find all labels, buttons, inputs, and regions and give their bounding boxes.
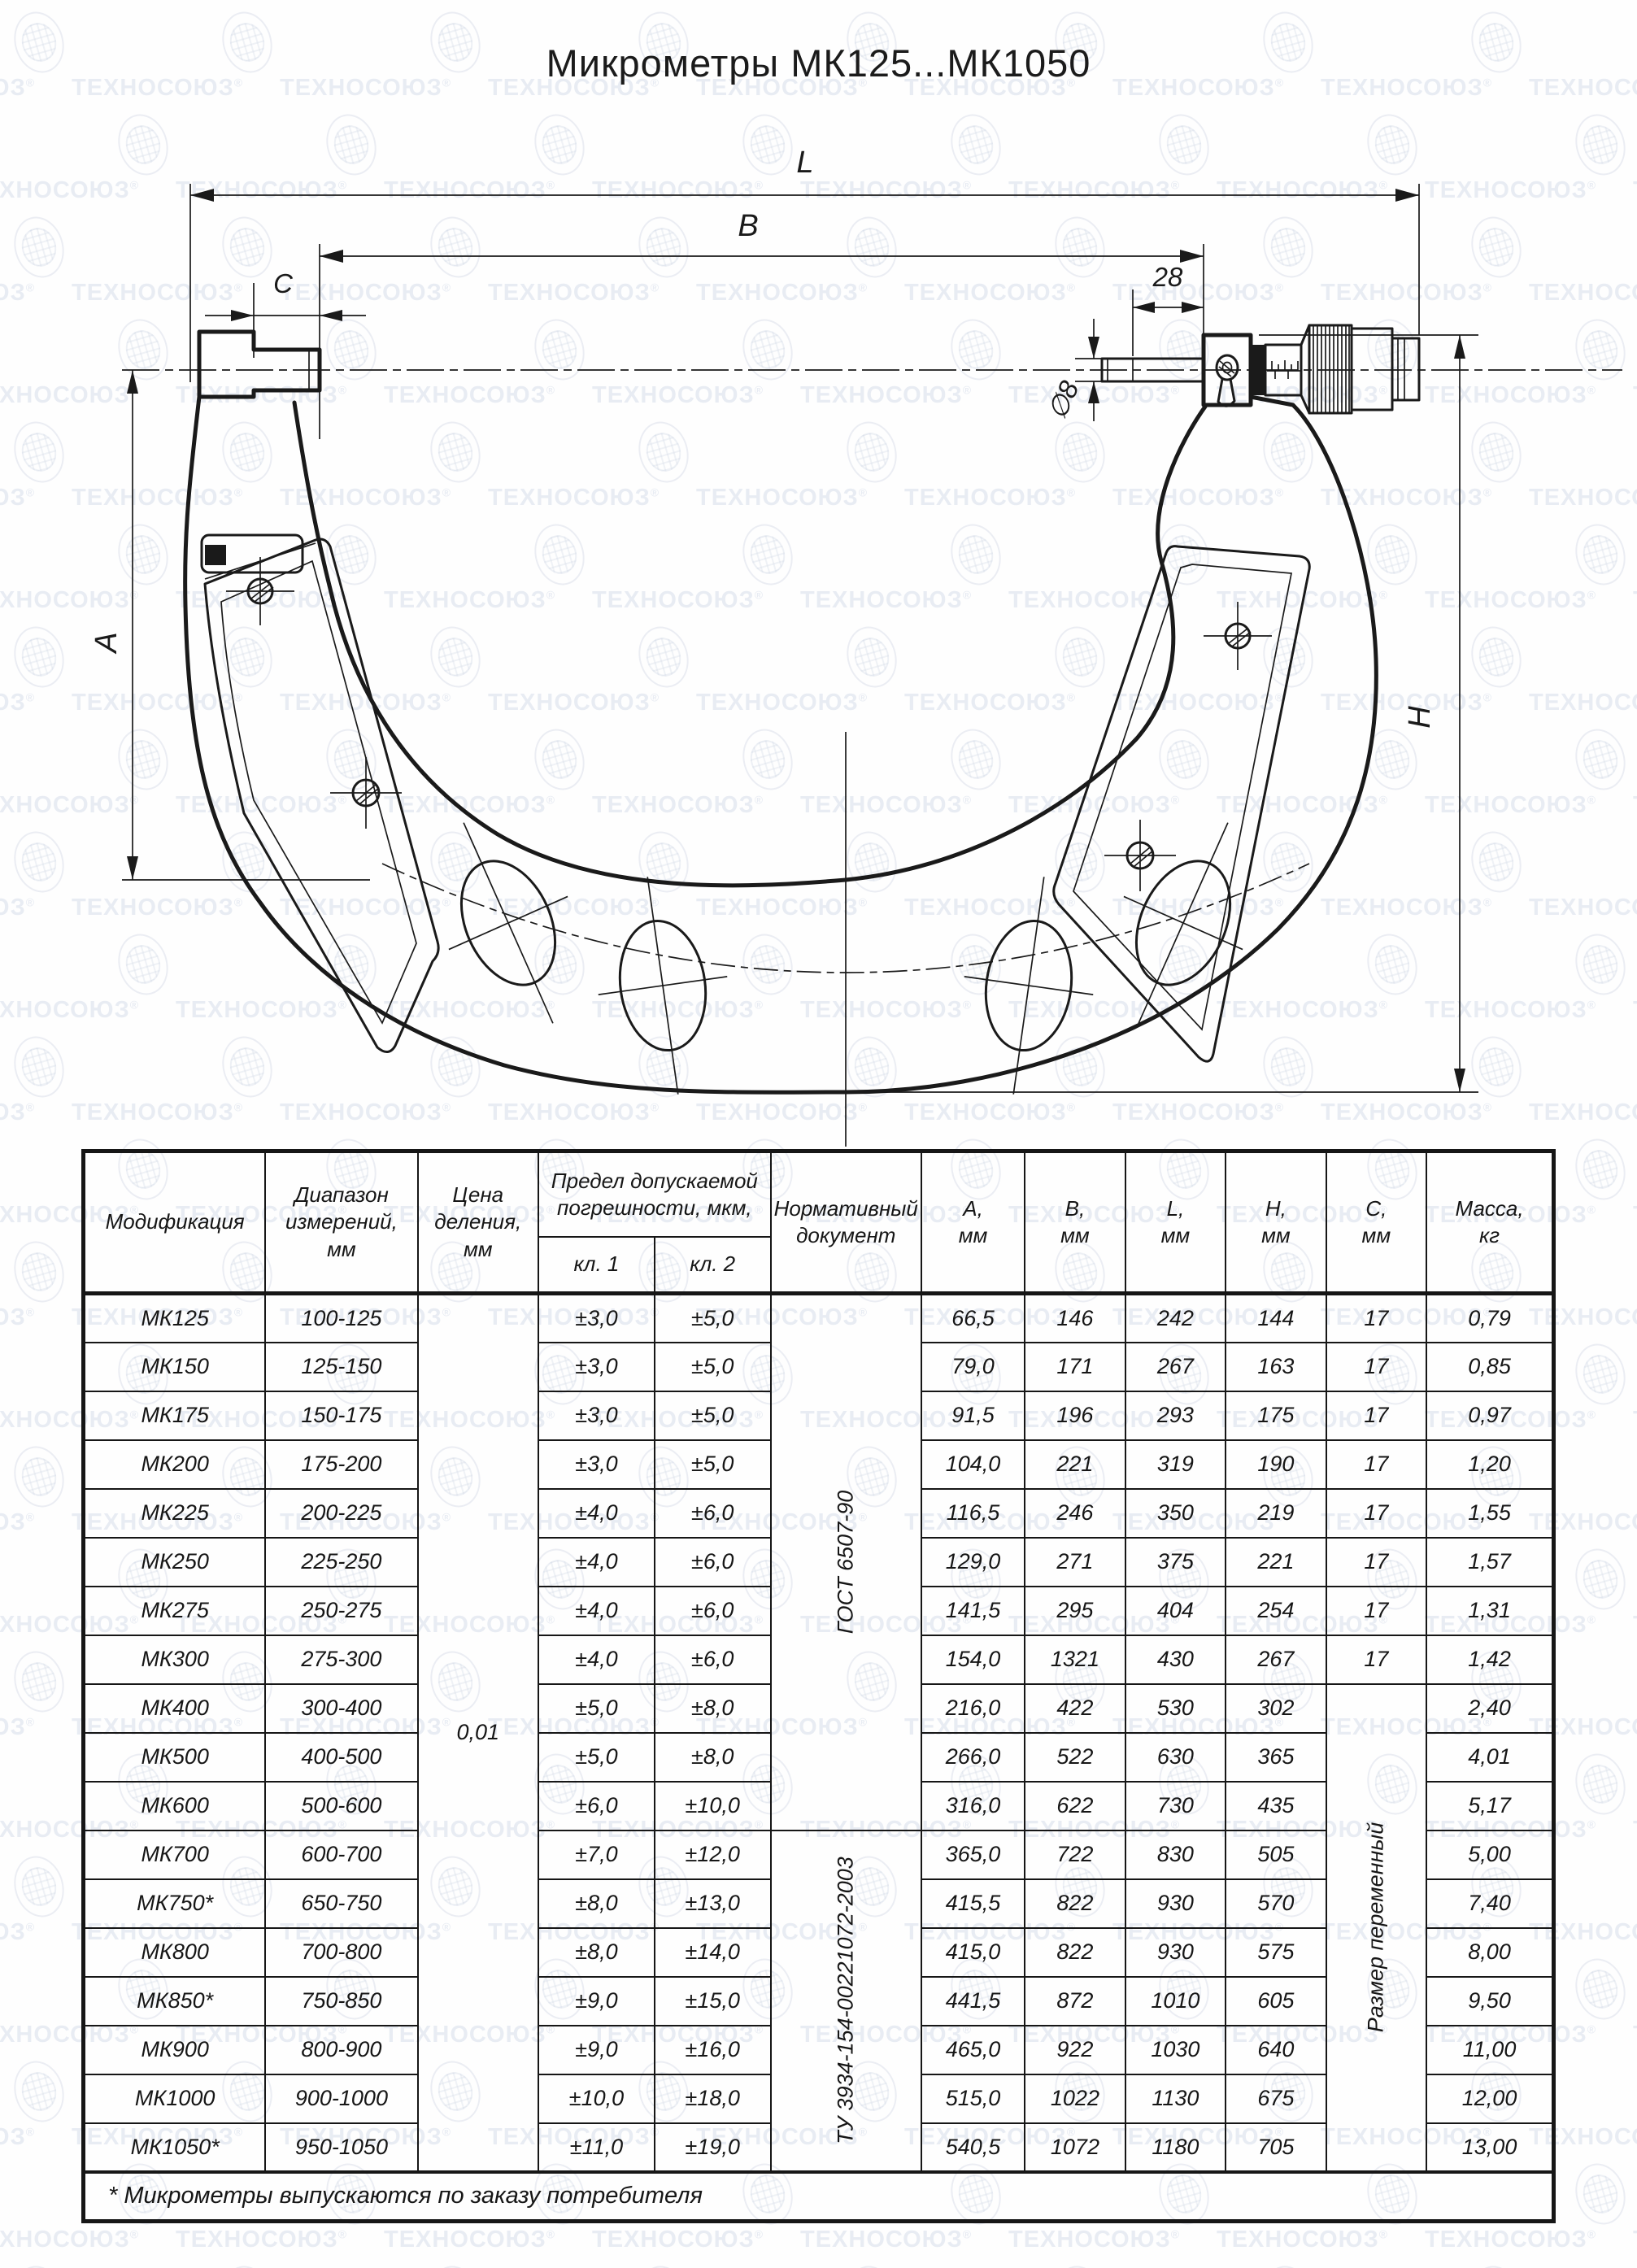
- cell-range: 600-700: [265, 1831, 417, 1879]
- cell-kl2: ±5,0: [655, 1343, 771, 1391]
- cell-h: 505: [1226, 1831, 1326, 1879]
- cell-range: 250-275: [265, 1587, 417, 1635]
- cell-kl2: ±5,0: [655, 1440, 771, 1489]
- cell-c: 17: [1326, 1391, 1426, 1440]
- cell-h: 365: [1226, 1733, 1326, 1782]
- cell-mod: МК750*: [84, 1879, 266, 1928]
- watermark-text: ТЕХНОСОЮЗ®: [0, 1714, 35, 1741]
- table-header: МодификацияДиапазонизмерений,ммЦенаделен…: [84, 1151, 1554, 1294]
- cell-kl2: ±14,0: [655, 1928, 771, 1977]
- cell-a: 104,0: [921, 1440, 1025, 1489]
- cell-range: 900-1000: [265, 2074, 417, 2123]
- cell-kl2: ±8,0: [655, 1733, 771, 1782]
- cell-b: 622: [1025, 1782, 1125, 1831]
- watermark-text: ТЕХНОСОЮЗ®: [1633, 1202, 1637, 1229]
- cell-mass: 13,00: [1426, 2123, 1553, 2172]
- cell-h: 302: [1226, 1684, 1326, 1733]
- cell-a: 66,5: [921, 1294, 1025, 1343]
- cell-l: 730: [1125, 1782, 1226, 1831]
- header-cell-kl1: кл. 1: [538, 1237, 655, 1294]
- spec-table: МодификацияДиапазонизмерений,ммЦенаделен…: [81, 1149, 1556, 2223]
- cell-mod: МК800: [84, 1928, 266, 1977]
- watermark-text: ТЕХНОСОЮЗ®: [0, 2227, 139, 2253]
- cell-b: 1072: [1025, 2123, 1125, 2172]
- cell-l: 404: [1125, 1587, 1226, 1635]
- cell-mass: 9,50: [1426, 1977, 1553, 2026]
- cell-c: 17: [1326, 1587, 1426, 1635]
- cell-range: 175-200: [265, 1440, 417, 1489]
- cell-l: 350: [1125, 1489, 1226, 1538]
- cell-mass: 1,42: [1426, 1635, 1553, 1684]
- cell-b: 221: [1025, 1440, 1125, 1489]
- cell-kl2: ±16,0: [655, 2026, 771, 2074]
- cell-kl2: ±8,0: [655, 1684, 771, 1733]
- cell-b: 822: [1025, 1879, 1125, 1928]
- watermark-text: ТЕХНОСОЮЗ®: [592, 2227, 764, 2253]
- cell-kl2: ±15,0: [655, 1977, 771, 2026]
- cell-kl1: ±9,0: [538, 1977, 655, 2026]
- cell-mod: МК125: [84, 1294, 266, 1343]
- watermark-globe-icon: [7, 1235, 72, 1308]
- watermark-text: ТЕХНОСОЮЗ®: [0, 1509, 35, 1536]
- cell-a: 141,5: [921, 1587, 1025, 1635]
- cell-mod: МК1000: [84, 2074, 266, 2123]
- cell-h: 705: [1226, 2123, 1326, 2172]
- watermark-globe-icon: [1569, 1748, 1633, 1821]
- cell-kl1: ±11,0: [538, 2123, 655, 2172]
- frame-outer-contour: [185, 397, 1377, 1092]
- anvil-block: [199, 332, 320, 397]
- header-cell-price: Ценаделения,мм: [418, 1151, 539, 1294]
- header-cell-doc: Нормативныйдокумент: [771, 1151, 921, 1294]
- cell-l: 1010: [1125, 1977, 1226, 2026]
- cell-mass: 8,00: [1426, 1928, 1553, 1977]
- cell-h: 640: [1226, 2026, 1326, 2074]
- right-plate-outer: [1054, 546, 1310, 1061]
- cell-a: 91,5: [921, 1391, 1025, 1440]
- table-row: МК125100-1250,01±3,0±5,0ГОСТ 6507-9066,5…: [84, 1294, 1554, 1343]
- cell-mod: МК600: [84, 1782, 266, 1831]
- cell-kl2: ±12,0: [655, 1831, 771, 1879]
- cell-doc-gost: ГОСТ 6507-90: [771, 1294, 921, 1831]
- cell-l: 267: [1125, 1343, 1226, 1391]
- cell-a: 129,0: [921, 1538, 1025, 1587]
- cell-kl1: ±7,0: [538, 1831, 655, 1879]
- cell-range: 125-150: [265, 1343, 417, 1391]
- cell-h: 575: [1226, 1928, 1326, 1977]
- cell-mod: МК225: [84, 1489, 266, 1538]
- cell-h: 570: [1226, 1879, 1326, 1928]
- screw: [226, 557, 294, 625]
- screw: [1204, 602, 1272, 670]
- cell-b: 822: [1025, 1928, 1125, 1977]
- cell-c: 17: [1326, 1489, 1426, 1538]
- watermark-text: ТЕХНОСОЮЗ®: [800, 2227, 972, 2253]
- cell-a: 216,0: [921, 1684, 1025, 1733]
- cell-mod: МК150: [84, 1343, 266, 1391]
- cell-range: 650-750: [265, 1879, 417, 1928]
- right-plate-inner: [1073, 564, 1291, 1030]
- cell-a: 465,0: [921, 2026, 1025, 2074]
- watermark-text: ТЕХНОСОЮЗ®: [1425, 2227, 1596, 2253]
- cell-mass: 5,00: [1426, 1831, 1553, 1879]
- cell-mass: 0,97: [1426, 1391, 1553, 1440]
- cell-l: 430: [1125, 1635, 1226, 1684]
- cell-kl1: ±8,0: [538, 1928, 655, 1977]
- table-footer: * Микрометры выпускаются по заказу потре…: [84, 2172, 1554, 2222]
- cell-kl2: ±18,0: [655, 2074, 771, 2123]
- cell-b: 295: [1025, 1587, 1125, 1635]
- cell-kl2: ±5,0: [655, 1391, 771, 1440]
- screw: [1104, 820, 1176, 891]
- cell-c-variable: Размер переменный: [1326, 1684, 1426, 2172]
- watermark-text: ТЕХНОСОЮЗ®: [0, 1919, 35, 1946]
- cell-a: 79,0: [921, 1343, 1025, 1391]
- cell-l: 1180: [1125, 2123, 1226, 2172]
- cell-a: 415,0: [921, 1928, 1025, 1977]
- micrometer-drawing: L B C 28 ∅8 A: [0, 0, 1637, 1147]
- cell-kl1: ±6,0: [538, 1782, 655, 1831]
- cell-kl1: ±4,0: [538, 1538, 655, 1587]
- cell-kl1: ±4,0: [538, 1489, 655, 1538]
- watermark-globe-icon: [840, 2260, 904, 2268]
- cell-mod: МК900: [84, 2026, 266, 2074]
- cell-mass: 2,40: [1426, 1684, 1553, 1733]
- watermark-globe-icon: [7, 1645, 72, 1718]
- cell-b: 522: [1025, 1733, 1125, 1782]
- dim-label-H: H: [1403, 706, 1437, 729]
- left-plate-inner: [221, 561, 416, 1023]
- cell-range: 275-300: [265, 1635, 417, 1684]
- cell-mod: МК300: [84, 1635, 266, 1684]
- cell-mass: 1,31: [1426, 1587, 1553, 1635]
- cell-b: 422: [1025, 1684, 1125, 1733]
- cell-a: 365,0: [921, 1831, 1025, 1879]
- cell-b: 1321: [1025, 1635, 1125, 1684]
- cell-mod: МК175: [84, 1391, 266, 1440]
- cell-mod: МК700: [84, 1831, 266, 1879]
- cell-a: 515,0: [921, 2074, 1025, 2123]
- cell-kl1: ±5,0: [538, 1733, 655, 1782]
- cell-mod: МК850*: [84, 1977, 266, 2026]
- cell-range: 150-175: [265, 1391, 417, 1440]
- watermark-text: ТЕХНОСОЮЗ®: [1633, 1817, 1637, 1844]
- cell-doc-tu: ТУ 3934-154-00221072-2003: [771, 1831, 921, 2172]
- cell-h: 163: [1226, 1343, 1326, 1391]
- frame-inner-contour: [294, 403, 1205, 886]
- table-body: МК125100-1250,01±3,0±5,0ГОСТ 6507-9066,5…: [84, 1294, 1554, 2172]
- cell-kl2: ±13,0: [655, 1879, 771, 1928]
- watermark-globe-icon: [1569, 1338, 1633, 1411]
- cell-mod: МК400: [84, 1684, 266, 1733]
- cell-h: 144: [1226, 1294, 1326, 1343]
- cell-mass: 5,17: [1426, 1782, 1553, 1831]
- footnote-row: * Микрометры выпускаются по заказу потре…: [84, 2172, 1554, 2222]
- datasheet-page: ТЕХНОСОЮЗ®ТЕХНОСОЮЗ®ТЕХНОСОЮЗ®ТЕХНОСОЮЗ®…: [0, 0, 1637, 2268]
- cell-h: 675: [1226, 2074, 1326, 2123]
- header-cell-l: L,мм: [1125, 1151, 1226, 1294]
- watermark-globe-icon: [7, 2260, 72, 2268]
- cell-l: 830: [1125, 1831, 1226, 1879]
- cell-range: 800-900: [265, 2026, 417, 2074]
- watermark-globe-icon: [632, 2260, 696, 2268]
- cell-b: 872: [1025, 1977, 1125, 2026]
- footnote-text: * Микрометры выпускаются по заказу потре…: [84, 2172, 1554, 2222]
- cell-b: 246: [1025, 1489, 1125, 1538]
- watermark-globe-icon: [1465, 2260, 1529, 2268]
- cell-kl1: ±3,0: [538, 1391, 655, 1440]
- frame-hole: [583, 868, 742, 1104]
- cell-range: 300-400: [265, 1684, 417, 1733]
- cell-range: 750-850: [265, 1977, 417, 2026]
- cell-b: 146: [1025, 1294, 1125, 1343]
- dim-label-C: C: [273, 268, 294, 298]
- watermark-text: ТЕХНОСОЮЗ®: [176, 2227, 347, 2253]
- cell-a: 441,5: [921, 1977, 1025, 2026]
- watermark-text: ТЕХНОСОЮЗ®: [0, 1304, 35, 1331]
- cell-l: 630: [1125, 1733, 1226, 1782]
- cell-l: 375: [1125, 1538, 1226, 1587]
- cell-l: 1030: [1125, 2026, 1226, 2074]
- header-cell-a: А,мм: [921, 1151, 1025, 1294]
- cell-a: 116,5: [921, 1489, 1025, 1538]
- cell-h: 267: [1226, 1635, 1326, 1684]
- page-title: Микрометры МК125...МК1050: [0, 41, 1637, 85]
- cell-h: 254: [1226, 1587, 1326, 1635]
- cell-kl2: ±10,0: [655, 1782, 771, 1831]
- dim-label-L: L: [796, 146, 813, 180]
- cell-kl2: ±6,0: [655, 1587, 771, 1635]
- dim-label-A: A: [89, 632, 124, 654]
- cell-mass: 12,00: [1426, 2074, 1553, 2123]
- cell-price-merged: 0,01: [418, 1294, 539, 2172]
- cell-a: 266,0: [921, 1733, 1025, 1782]
- cell-mod: МК200: [84, 1440, 266, 1489]
- cell-b: 271: [1025, 1538, 1125, 1587]
- header-cell-limit: Предел допускаемойпогрешности, мкм,: [538, 1151, 771, 1238]
- cell-l: 530: [1125, 1684, 1226, 1733]
- watermark-globe-icon: [424, 2260, 488, 2268]
- cell-kl2: ±6,0: [655, 1635, 771, 1684]
- watermark-text: ТЕХНОСОЮЗ®: [1008, 2227, 1180, 2253]
- cell-h: 605: [1226, 1977, 1326, 2026]
- dim-label-B: B: [738, 209, 758, 243]
- cell-kl1: ±8,0: [538, 1879, 655, 1928]
- watermark-globe-icon: [1569, 1952, 1633, 2026]
- cell-h: 221: [1226, 1538, 1326, 1587]
- dim-label-dia8: ∅8: [1042, 376, 1085, 424]
- cell-kl1: ±5,0: [538, 1684, 655, 1733]
- cell-range: 500-600: [265, 1782, 417, 1831]
- header-cell-b: В,мм: [1025, 1151, 1125, 1294]
- cell-kl1: ±10,0: [538, 2074, 655, 2123]
- watermark-text: ТЕХНОСОЮЗ®: [1217, 2227, 1388, 2253]
- watermark-globe-icon: [1569, 1543, 1633, 1616]
- cell-kl2: ±5,0: [655, 1294, 771, 1343]
- watermark-globe-icon: [216, 2260, 280, 2268]
- cell-mass: 1,20: [1426, 1440, 1553, 1489]
- ratchet-stop: [1392, 338, 1419, 400]
- cell-h: 175: [1226, 1391, 1326, 1440]
- cell-kl1: ±9,0: [538, 2026, 655, 2074]
- dim-label-28: 28: [1152, 262, 1183, 292]
- cell-l: 930: [1125, 1928, 1226, 1977]
- header-cell-mod: Модификация: [84, 1151, 266, 1294]
- cell-a: 415,5: [921, 1879, 1025, 1928]
- cell-kl1: ±3,0: [538, 1343, 655, 1391]
- watermark-text: ТЕХНОСОЮЗ®: [0, 2124, 35, 2151]
- watermark-globe-icon: [7, 2055, 72, 2128]
- header-cell-mass: Масса,кг: [1426, 1151, 1553, 1294]
- cell-b: 171: [1025, 1343, 1125, 1391]
- cell-mod: МК1050*: [84, 2123, 266, 2172]
- cell-b: 196: [1025, 1391, 1125, 1440]
- header-cell-range: Диапазонизмерений,мм: [265, 1151, 417, 1294]
- lock-lever: [1217, 355, 1238, 406]
- watermark-text: ТЕХНОСОЮЗ®: [384, 2227, 555, 2253]
- cell-mass: 7,40: [1426, 1879, 1553, 1928]
- cell-mod: МК250: [84, 1538, 266, 1587]
- cell-c: 17: [1326, 1343, 1426, 1391]
- cell-c: 17: [1326, 1440, 1426, 1489]
- cell-c: 17: [1326, 1635, 1426, 1684]
- cell-range: 950-1050: [265, 2123, 417, 2172]
- header-cell-kl2: кл. 2: [655, 1237, 771, 1294]
- watermark-globe-icon: [1048, 2260, 1112, 2268]
- cell-kl1: ±4,0: [538, 1635, 655, 1684]
- watermark-text: ТЕХНОСОЮЗ®: [1633, 1407, 1637, 1434]
- header-row: МодификацияДиапазонизмерений,ммЦенаделен…: [84, 1151, 1554, 1238]
- cell-mass: 11,00: [1426, 2026, 1553, 2074]
- cell-h: 190: [1226, 1440, 1326, 1489]
- cell-range: 400-500: [265, 1733, 417, 1782]
- cell-c: 17: [1326, 1294, 1426, 1343]
- header-cell-h: Н,мм: [1226, 1151, 1326, 1294]
- cell-a: 154,0: [921, 1635, 1025, 1684]
- cell-kl2: ±19,0: [655, 2123, 771, 2172]
- cell-mass: 1,55: [1426, 1489, 1553, 1538]
- cell-a: 316,0: [921, 1782, 1025, 1831]
- cell-kl2: ±6,0: [655, 1489, 771, 1538]
- cell-range: 100-125: [265, 1294, 417, 1343]
- cell-range: 200-225: [265, 1489, 417, 1538]
- watermark-text: ТЕХНОСОЮЗ®: [1633, 1612, 1637, 1639]
- cell-range: 225-250: [265, 1538, 417, 1587]
- cell-c: 17: [1326, 1538, 1426, 1587]
- watermark-text: ТЕХНОСОЮЗ®: [1633, 2022, 1637, 2048]
- watermark-text: ТЕХНОСОЮЗ®: [1633, 2227, 1637, 2253]
- cell-l: 319: [1125, 1440, 1226, 1489]
- cell-kl1: ±3,0: [538, 1440, 655, 1489]
- cell-h: 219: [1226, 1489, 1326, 1538]
- cell-l: 930: [1125, 1879, 1226, 1928]
- frame-hole: [404, 796, 612, 1050]
- cell-b: 922: [1025, 2026, 1125, 2074]
- cell-kl1: ±3,0: [538, 1294, 655, 1343]
- watermark-globe-icon: [1256, 2260, 1321, 2268]
- cell-mass: 1,57: [1426, 1538, 1553, 1587]
- thimble-body: [1352, 329, 1392, 410]
- cell-kl2: ±6,0: [655, 1538, 771, 1587]
- cell-a: 540,5: [921, 2123, 1025, 2172]
- cell-h: 435: [1226, 1782, 1326, 1831]
- header-cell-c: С,мм: [1326, 1151, 1426, 1294]
- cell-l: 1130: [1125, 2074, 1226, 2123]
- watermark-globe-icon: [1569, 2157, 1633, 2231]
- cell-l: 242: [1125, 1294, 1226, 1343]
- cell-mod: МК275: [84, 1587, 266, 1635]
- cell-mass: 0,85: [1426, 1343, 1553, 1391]
- cell-mass: 0,79: [1426, 1294, 1553, 1343]
- watermark-globe-icon: [7, 1440, 72, 1513]
- cell-l: 293: [1125, 1391, 1226, 1440]
- cell-b: 722: [1025, 1831, 1125, 1879]
- watermark-globe-icon: [7, 1850, 72, 1923]
- cell-b: 1022: [1025, 2074, 1125, 2123]
- cell-kl1: ±4,0: [538, 1587, 655, 1635]
- cell-mod: МК500: [84, 1733, 266, 1782]
- cell-range: 700-800: [265, 1928, 417, 1977]
- cell-mass: 4,01: [1426, 1733, 1553, 1782]
